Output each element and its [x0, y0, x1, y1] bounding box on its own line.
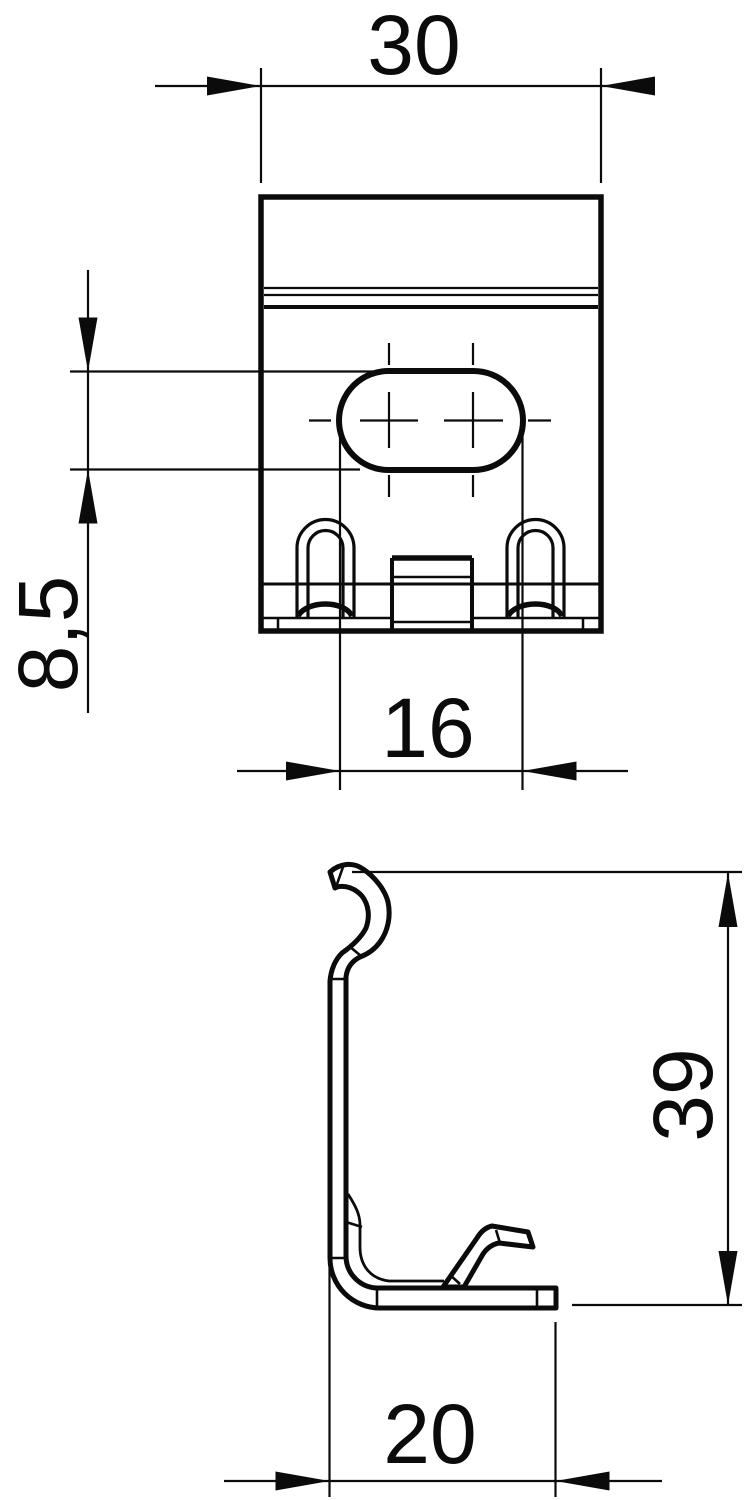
- centerline-dashes: [309, 343, 551, 497]
- dim-8-5-value: 8,5: [1, 576, 95, 693]
- dim-30-value: 30: [367, 0, 460, 92]
- dim-16-arrow-right: [523, 762, 577, 781]
- dim-slot-height: 8,5: [1, 270, 378, 713]
- dim-20-arrow-left: [276, 1472, 330, 1491]
- dim-20-value: 20: [383, 1387, 476, 1481]
- spring-tongue: [443, 1226, 533, 1287]
- dim-16-value: 16: [381, 681, 474, 775]
- technical-drawing: 30 8,5 16: [0, 0, 747, 1500]
- center-tab-sides: [392, 558, 472, 629]
- dim-30-arrow-right: [601, 77, 655, 96]
- dim-side-height: 39: [352, 872, 742, 1305]
- front-view: [261, 197, 601, 631]
- dim-20-arrow-right: [556, 1472, 610, 1491]
- left-center-cross: [360, 392, 418, 448]
- center-tab: [392, 558, 472, 629]
- side-view: [329, 864, 556, 1308]
- slot-centerlines: [309, 343, 551, 497]
- right-center-cross: [444, 392, 503, 448]
- left-lance-arch: [297, 520, 354, 618]
- right-lance-arch: [507, 520, 564, 618]
- dim-16-arrow-left: [286, 762, 340, 781]
- dim-front-width: 30: [155, 0, 655, 183]
- lance-strip-line: [348, 1194, 444, 1281]
- dim-8-5-arrow-bottom: [79, 470, 98, 524]
- dim-8-5-extension-lines: [70, 372, 378, 470]
- front-body-outline: [261, 197, 601, 631]
- dim-39-value: 39: [636, 1048, 730, 1141]
- dim-8-5-arrow-top: [79, 318, 98, 372]
- dim-39-arrow-top: [719, 873, 738, 927]
- dim-39-arrow-bottom: [719, 1251, 738, 1305]
- drawing-page: 30 8,5 16: [0, 0, 747, 1500]
- dim-30-arrow-left: [207, 77, 261, 96]
